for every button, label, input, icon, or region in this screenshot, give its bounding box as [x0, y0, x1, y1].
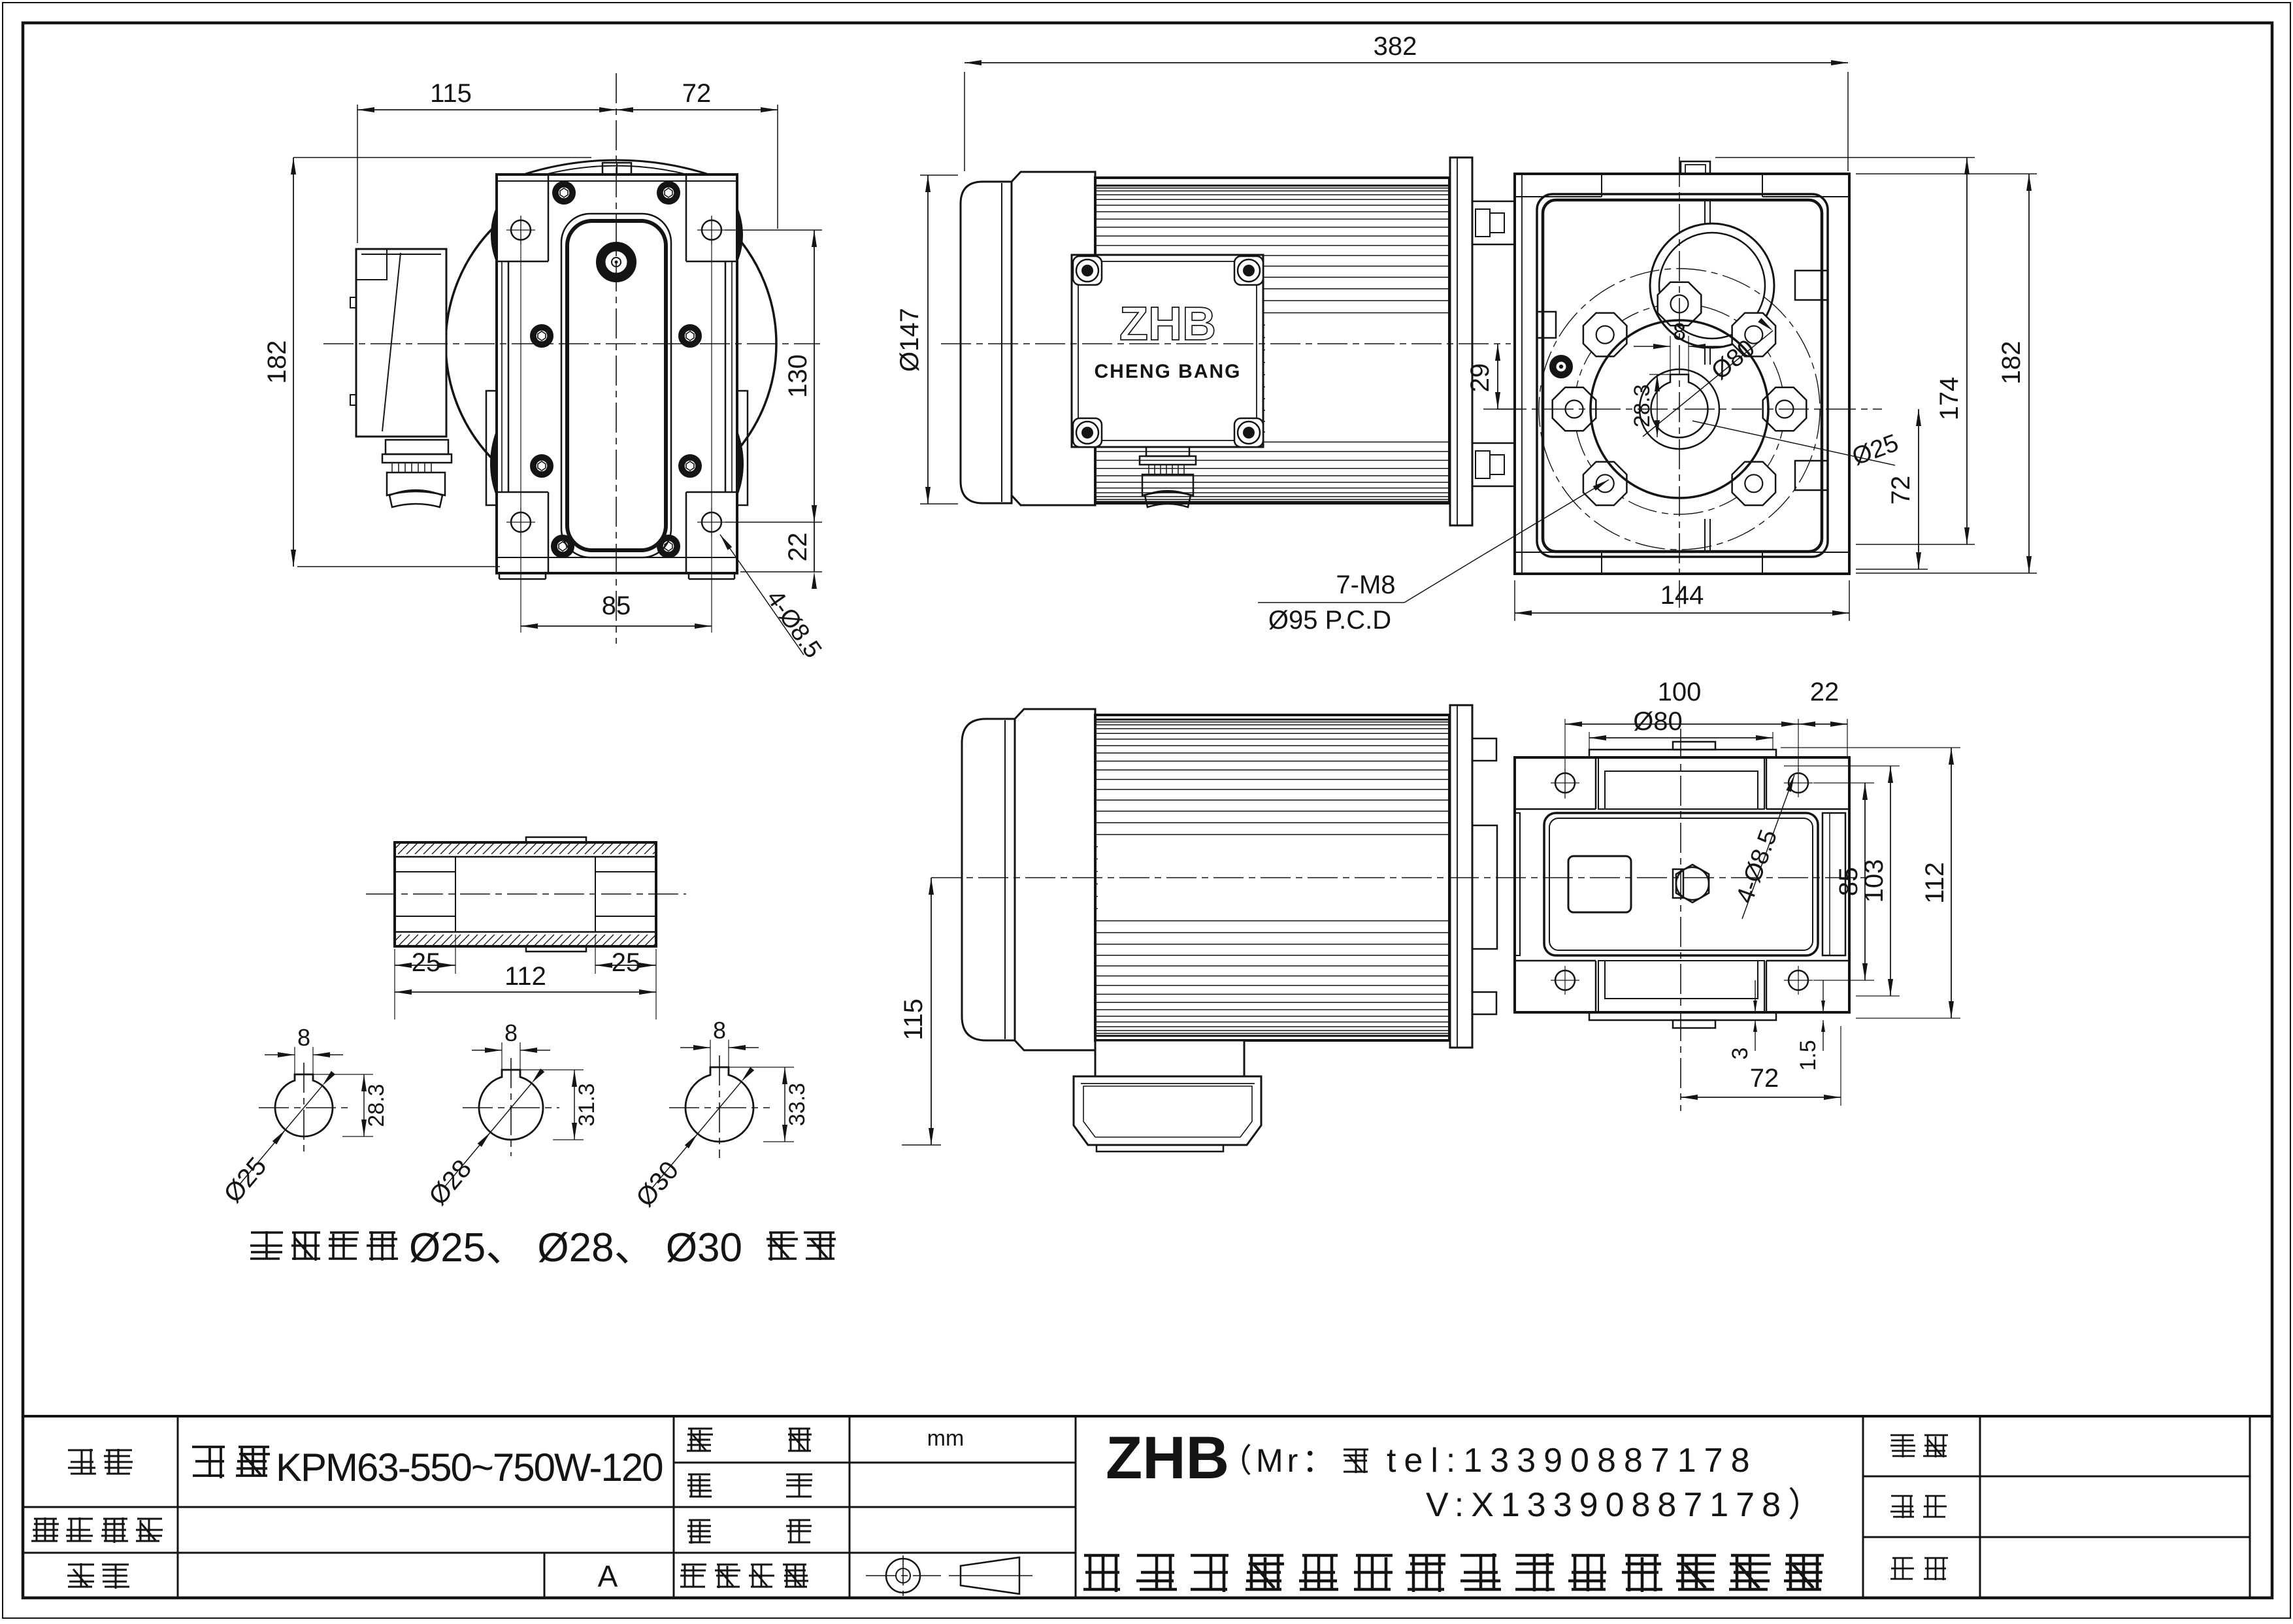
svg-text:72: 72 — [682, 79, 712, 108]
svg-text:8: 8 — [504, 1019, 518, 1046]
svg-text:mm: mm — [927, 1426, 965, 1451]
svg-text:115: 115 — [430, 79, 472, 108]
svg-text:Ø25、 Ø28、 Ø30: Ø25、 Ø28、 Ø30 — [409, 1225, 742, 1270]
svg-text:85: 85 — [1834, 867, 1863, 897]
svg-text:Ø95 P.C.D: Ø95 P.C.D — [1268, 606, 1391, 635]
svg-text:103: 103 — [1860, 859, 1889, 903]
svg-text:112: 112 — [504, 962, 546, 991]
svg-text:382: 382 — [1374, 32, 1417, 61]
svg-text:（Mr：: （Mr： — [1219, 1442, 1338, 1479]
svg-text:1.5: 1.5 — [1796, 1040, 1821, 1070]
svg-text:Ø80: Ø80 — [1633, 707, 1683, 736]
svg-text:33.3: 33.3 — [785, 1083, 810, 1126]
svg-text:A: A — [598, 1559, 618, 1593]
svg-text:ZHB: ZHB — [1106, 1425, 1229, 1491]
svg-text:KPM63-550~750W-120: KPM63-550~750W-120 — [276, 1446, 663, 1489]
svg-text:25: 25 — [612, 948, 641, 977]
svg-text:29: 29 — [1466, 363, 1494, 393]
svg-text:72: 72 — [1887, 476, 1915, 505]
svg-text:22: 22 — [1810, 678, 1839, 706]
svg-text:72: 72 — [1750, 1064, 1779, 1093]
svg-text:V:X13390887178）: V:X13390887178） — [1426, 1486, 1829, 1524]
svg-text:100: 100 — [1658, 678, 1702, 706]
svg-text:130: 130 — [784, 354, 812, 398]
svg-text:7-M8: 7-M8 — [1336, 571, 1395, 599]
svg-text:174: 174 — [1935, 377, 1964, 421]
svg-text:8: 8 — [1673, 318, 1686, 345]
svg-text:182: 182 — [1997, 341, 2026, 385]
svg-text:3: 3 — [1728, 1048, 1753, 1060]
svg-text:tel:13390887178: tel:13390887178 — [1387, 1442, 1758, 1480]
svg-text:182: 182 — [263, 340, 291, 384]
svg-text:25: 25 — [412, 948, 441, 977]
svg-text:144: 144 — [1660, 581, 1704, 610]
svg-text:28.3: 28.3 — [364, 1084, 389, 1127]
svg-text:22: 22 — [784, 533, 812, 562]
svg-text:31.3: 31.3 — [574, 1083, 599, 1126]
svg-text:ZHB: ZHB — [1119, 298, 1216, 350]
svg-text:8: 8 — [297, 1024, 310, 1051]
svg-text:CHENG BANG: CHENG BANG — [1094, 361, 1241, 382]
svg-text:115: 115 — [899, 999, 928, 1040]
svg-text:85: 85 — [602, 591, 631, 620]
svg-text:Ø147: Ø147 — [895, 308, 924, 372]
svg-text:28.3: 28.3 — [1630, 384, 1655, 427]
svg-text:8: 8 — [713, 1017, 726, 1044]
svg-text:112: 112 — [1921, 862, 1949, 904]
